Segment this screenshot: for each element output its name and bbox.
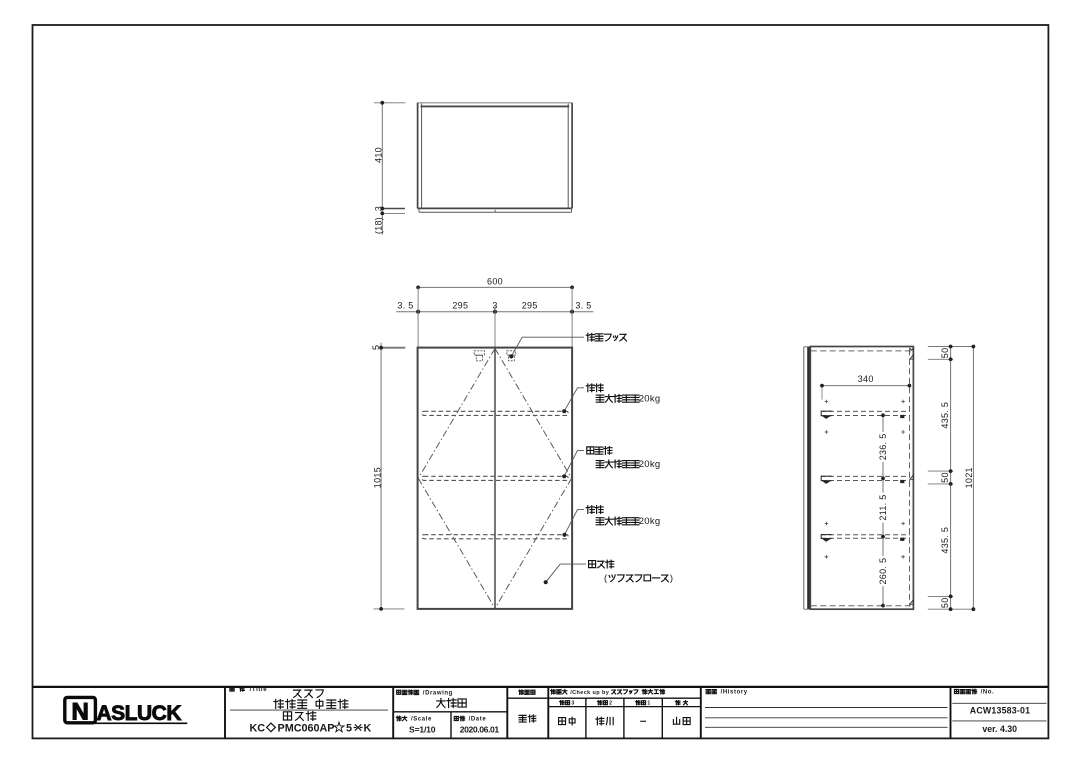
svg-text:340: 340 xyxy=(858,374,874,384)
svg-text:435. 5: 435. 5 xyxy=(940,402,950,429)
svg-text:1015: 1015 xyxy=(373,467,383,488)
svg-text:3: 3 xyxy=(374,206,384,211)
svg-text:50: 50 xyxy=(940,348,950,359)
svg-text:): ) xyxy=(670,573,673,584)
svg-text:3. 5: 3. 5 xyxy=(397,301,413,311)
svg-text:5: 5 xyxy=(371,345,381,350)
svg-text:/No.: /No. xyxy=(981,690,995,696)
svg-text:S=1/10: S=1/10 xyxy=(409,724,436,734)
svg-text:1021: 1021 xyxy=(964,467,974,488)
svg-text:/Drawing: /Drawing xyxy=(423,690,453,696)
svg-text:3: 3 xyxy=(571,701,574,707)
svg-text:2020.06.01: 2020.06.01 xyxy=(460,724,500,734)
svg-text:1: 1 xyxy=(647,701,650,707)
svg-text:410: 410 xyxy=(374,147,384,163)
svg-text:5: 5 xyxy=(346,722,352,734)
svg-text:(18): (18) xyxy=(374,217,384,234)
svg-text:PMC060AP: PMC060AP xyxy=(278,722,335,734)
svg-text:295: 295 xyxy=(522,301,538,311)
svg-text:KC: KC xyxy=(250,722,266,734)
svg-text:260. 5: 260. 5 xyxy=(878,558,888,585)
svg-text:435. 5: 435. 5 xyxy=(940,527,950,554)
svg-text:20kg: 20kg xyxy=(639,516,661,527)
svg-text:/History: /History xyxy=(721,690,748,696)
svg-text:/Check up by: /Check up by xyxy=(570,690,610,696)
svg-text:50: 50 xyxy=(940,597,950,608)
svg-text:K: K xyxy=(364,722,372,734)
svg-text:ASLUCK: ASLUCK xyxy=(97,702,182,725)
svg-text:50: 50 xyxy=(940,472,950,483)
svg-text:ACW13583-01: ACW13583-01 xyxy=(970,706,1030,716)
svg-text:236. 5: 236. 5 xyxy=(878,433,888,460)
svg-text:(: ( xyxy=(604,573,608,584)
svg-text:211. 5: 211. 5 xyxy=(878,494,888,520)
svg-text:/Date: /Date xyxy=(469,717,487,723)
svg-text:3. 5: 3. 5 xyxy=(575,301,591,311)
svg-text:2: 2 xyxy=(609,701,612,707)
svg-text:295: 295 xyxy=(452,301,468,311)
svg-text:ver. 4.30: ver. 4.30 xyxy=(982,724,1017,734)
svg-text:N: N xyxy=(72,699,89,726)
svg-text:/Scale: /Scale xyxy=(411,717,432,723)
svg-text:20kg: 20kg xyxy=(639,394,661,405)
svg-text:600: 600 xyxy=(487,276,503,286)
svg-text:20kg: 20kg xyxy=(639,459,661,470)
svg-text:/Title: /Title xyxy=(250,687,268,693)
